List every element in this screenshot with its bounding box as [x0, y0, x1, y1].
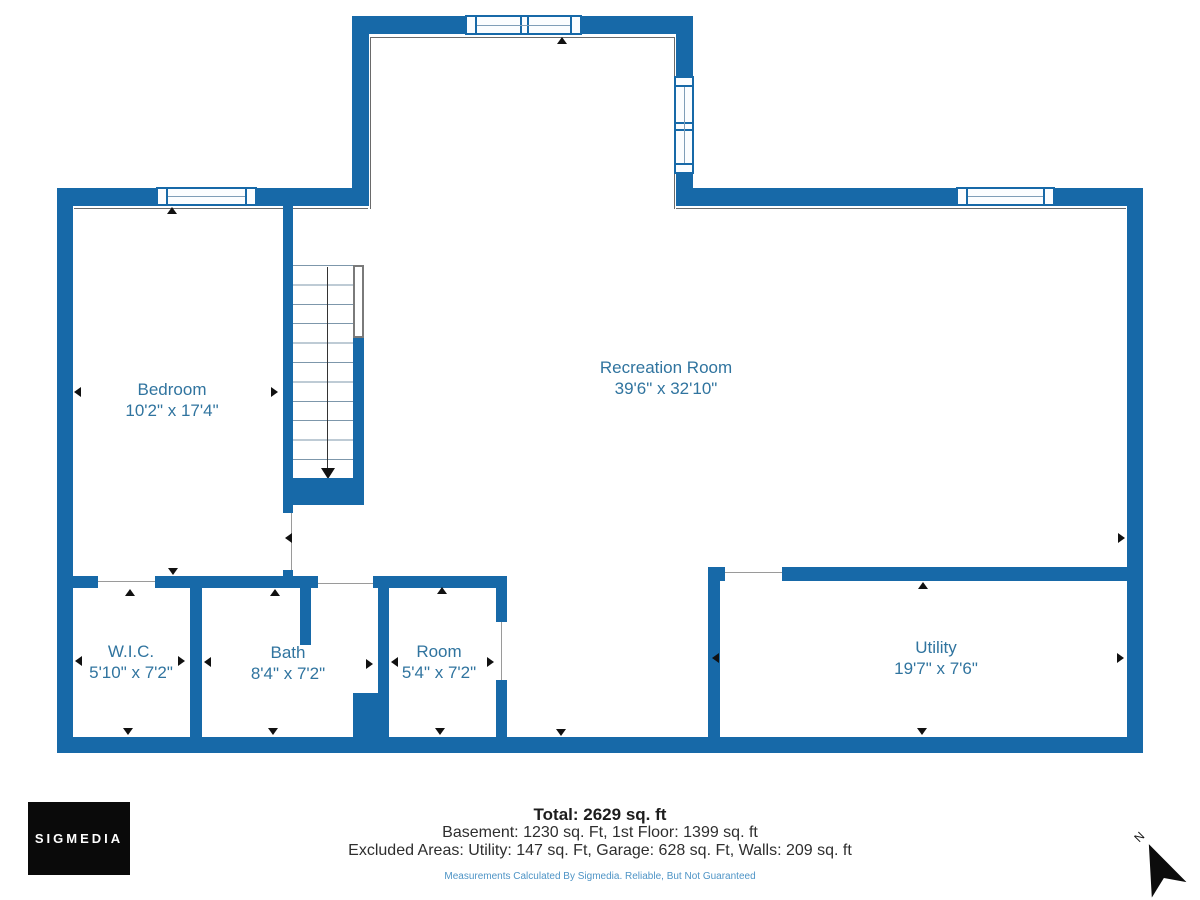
excluded-areas: Excluded Areas: Utility: 147 sq. Ft, Gar… — [0, 842, 1200, 860]
room-dimensions: 8'4" x 7'2" — [251, 664, 325, 683]
measure-arrow-right — [1117, 653, 1124, 663]
stair-handrail — [353, 265, 364, 338]
floorplan: Bedroom 10'2" x 17'4" Recreation Room 39… — [0, 0, 1200, 900]
room-label-room: Room 5'4" x 7'2" — [402, 641, 476, 683]
room-dimensions: 5'4" x 7'2" — [402, 663, 476, 682]
stair-treads — [293, 265, 354, 478]
measure-arrow-right — [178, 656, 185, 666]
wall — [496, 576, 507, 622]
north-label: N — [1131, 829, 1147, 845]
wall — [155, 576, 318, 588]
wall — [190, 576, 202, 737]
wall — [496, 680, 507, 737]
room-dimensions: 39'6" x 32'10" — [615, 379, 718, 398]
window — [156, 187, 257, 206]
room-dimensions: 19'7" x 7'6" — [894, 659, 978, 678]
wall — [708, 567, 725, 581]
window — [674, 76, 694, 174]
wall — [73, 576, 98, 588]
measure-arrow-up — [270, 589, 280, 596]
measure-arrow-up — [557, 37, 567, 44]
measure-arrow-down — [123, 728, 133, 735]
room-label-recreation-room: Recreation Room 39'6" x 32'10" — [600, 357, 732, 399]
measure-arrow-left — [285, 533, 292, 543]
compass: N — [1128, 828, 1198, 896]
wall — [352, 16, 369, 206]
wall — [378, 588, 389, 737]
door-opening — [98, 581, 155, 582]
wall — [676, 188, 1143, 206]
room-name: Recreation Room — [600, 358, 732, 377]
wall — [283, 206, 293, 513]
wall — [782, 567, 1143, 581]
wall — [283, 478, 364, 505]
total-area: Total: 2629 sq. ft — [0, 805, 1200, 824]
room-name: Bedroom — [138, 380, 207, 399]
room-dimensions: 10'2" x 17'4" — [125, 401, 218, 420]
inner-wall-line — [370, 37, 371, 209]
wall — [1127, 188, 1143, 753]
measure-arrow-down — [435, 728, 445, 735]
wall — [57, 188, 73, 753]
room-name: Utility — [915, 638, 957, 657]
measure-arrow-right — [366, 659, 373, 669]
measure-arrow-down — [268, 728, 278, 735]
inner-wall-line — [676, 208, 1126, 209]
measure-arrow-up — [918, 582, 928, 589]
measure-arrow-left — [75, 656, 82, 666]
room-label-utility: Utility 19'7" x 7'6" — [894, 637, 978, 679]
room-label-bedroom: Bedroom 10'2" x 17'4" — [125, 379, 218, 421]
wall — [353, 693, 378, 737]
stair-direction-line — [327, 267, 328, 470]
disclaimer: Measurements Calculated By Sigmedia. Rel… — [0, 871, 1200, 882]
summary-block: Total: 2629 sq. ft Basement: 1230 sq. Ft… — [0, 805, 1200, 882]
window — [956, 187, 1055, 206]
inner-wall-line — [370, 37, 675, 38]
measure-arrow-left — [712, 653, 719, 663]
door-opening — [725, 572, 782, 573]
measure-arrow-up — [437, 587, 447, 594]
room-name: W.I.C. — [108, 642, 154, 661]
north-arrow-icon — [1131, 836, 1186, 897]
measure-arrow-up — [125, 589, 135, 596]
measure-arrow-down — [917, 728, 927, 735]
wall — [300, 588, 311, 645]
room-name: Bath — [271, 643, 306, 662]
measure-arrow-up — [167, 207, 177, 214]
measure-arrow-down — [168, 568, 178, 575]
measure-arrow-right — [271, 387, 278, 397]
measure-arrow-left — [391, 657, 398, 667]
measure-arrow-down — [556, 729, 566, 736]
door-opening — [501, 622, 502, 680]
floor-areas: Basement: 1230 sq. Ft, 1st Floor: 1399 s… — [0, 824, 1200, 842]
sigmedia-logo: SIGMEDIA — [28, 802, 130, 875]
measure-arrow-left — [204, 657, 211, 667]
logo-text: SIGMEDIA — [35, 831, 123, 846]
door-opening — [318, 583, 373, 584]
inner-wall-line — [74, 208, 368, 209]
room-name: Room — [416, 642, 461, 661]
wall — [353, 338, 364, 478]
wall — [708, 567, 720, 737]
measure-arrow-left — [74, 387, 81, 397]
window — [465, 15, 582, 35]
measure-arrow-right — [487, 657, 494, 667]
room-label-wic: W.I.C. 5'10" x 7'2" — [89, 641, 173, 683]
wall — [57, 737, 1143, 753]
room-label-bath: Bath 8'4" x 7'2" — [251, 642, 325, 684]
room-dimensions: 5'10" x 7'2" — [89, 663, 173, 682]
measure-arrow-right — [1118, 533, 1125, 543]
